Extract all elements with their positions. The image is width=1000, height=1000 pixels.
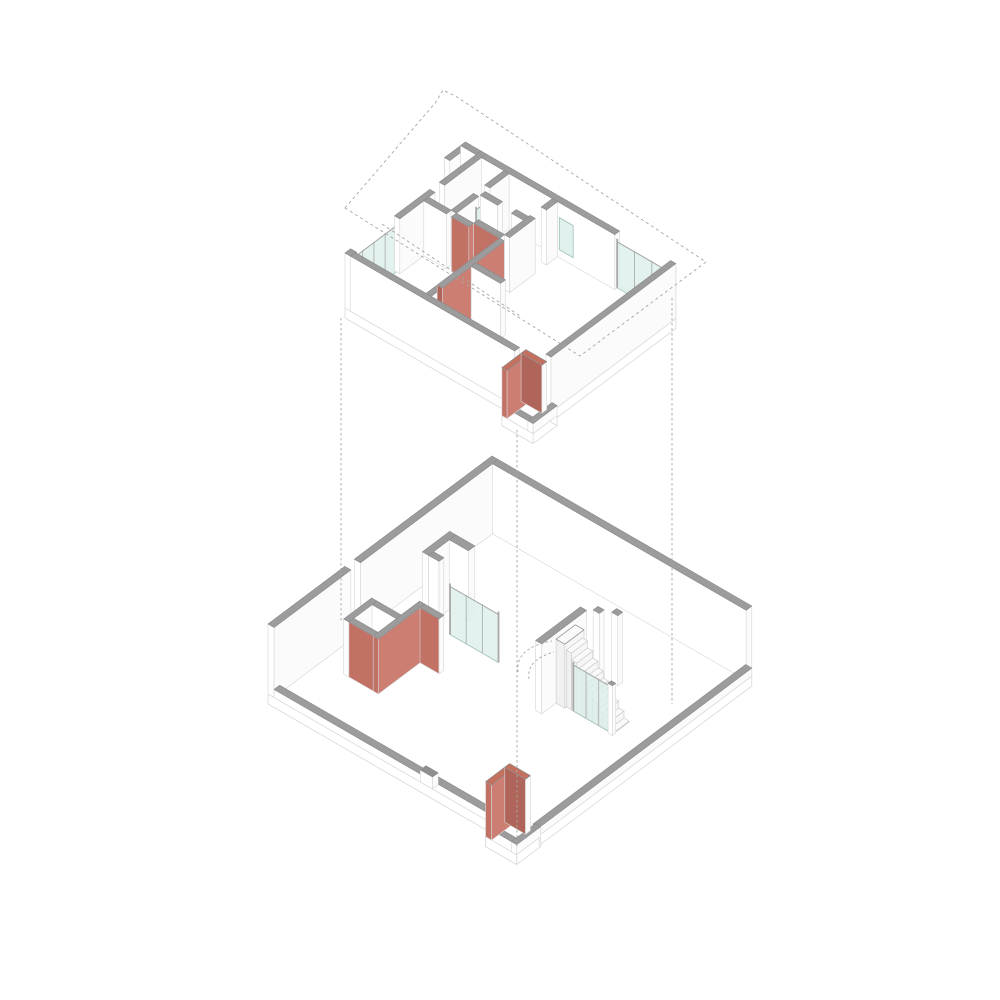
- lower-floor-plan: [268, 456, 752, 865]
- axonometric-diagram-canvas: [0, 0, 1000, 1000]
- upper-floor-plan: [345, 142, 676, 444]
- red-core-return: [420, 604, 444, 674]
- upper-entry-red-return: [521, 350, 547, 414]
- balustrade-end-post: [608, 681, 616, 736]
- lower-entry-red-return: [505, 764, 531, 835]
- partition-spine: [424, 197, 451, 269]
- stair-post-b: [612, 609, 623, 686]
- corridor-wall-right-b: [541, 199, 557, 265]
- exploded-axonometric-floor-plans: [0, 0, 1000, 1000]
